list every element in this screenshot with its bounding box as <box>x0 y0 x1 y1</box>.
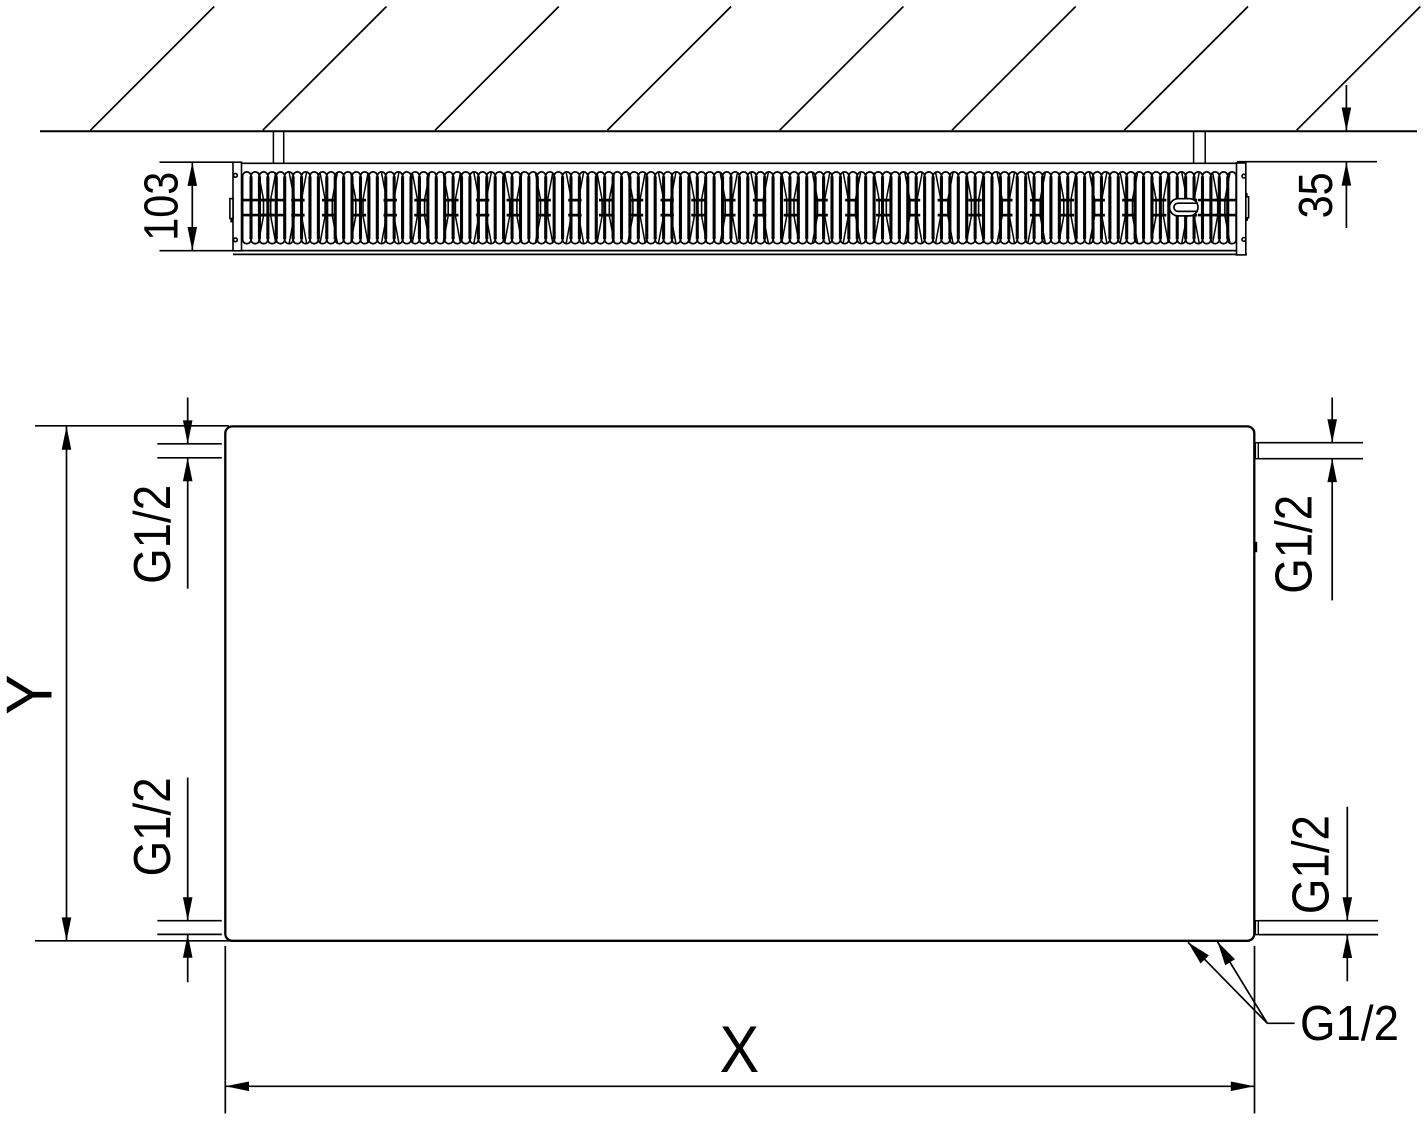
svg-text:X: X <box>720 1012 760 1086</box>
svg-text:G1/2: G1/2 <box>1281 815 1339 914</box>
svg-text:G1/2: G1/2 <box>123 485 181 584</box>
svg-text:G1/2: G1/2 <box>1264 495 1322 594</box>
svg-text:103: 103 <box>135 172 188 241</box>
svg-text:Y: Y <box>0 674 66 715</box>
svg-text:G1/2: G1/2 <box>123 777 181 876</box>
svg-text:G1/2: G1/2 <box>1300 996 1399 1051</box>
svg-text:35: 35 <box>1290 172 1343 218</box>
